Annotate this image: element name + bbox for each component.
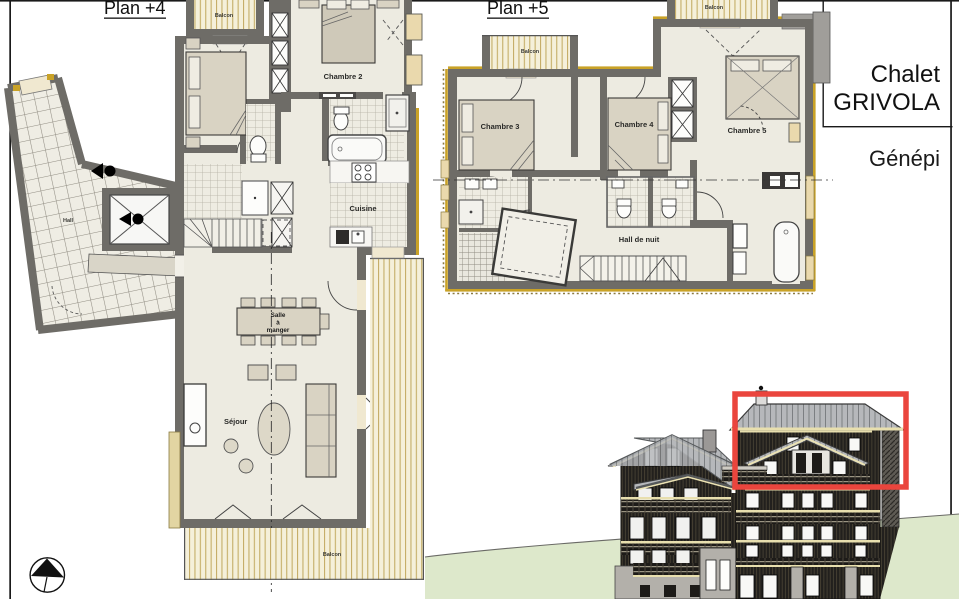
svg-text:Chambre 5: Chambre 5	[728, 126, 767, 135]
svg-text:Plan +4: Plan +4	[104, 0, 166, 18]
svg-text:Hall: Hall	[63, 218, 74, 224]
svg-text:Chambre 2: Chambre 2	[324, 72, 363, 81]
svg-text:Chambre 4: Chambre 4	[615, 120, 655, 129]
svg-text:Chambre 3: Chambre 3	[481, 122, 520, 131]
svg-text:Cuisine: Cuisine	[349, 204, 376, 213]
svg-text:GRIVOLA: GRIVOLA	[833, 89, 940, 116]
svg-text:Hall de nuit: Hall de nuit	[619, 235, 660, 244]
svg-text:Balcon: Balcon	[521, 49, 540, 55]
svg-text:Chalet: Chalet	[871, 61, 941, 88]
svg-text:Séjour: Séjour	[224, 417, 247, 426]
svg-text:Plan +5: Plan +5	[487, 0, 549, 18]
svg-text:Salle: Salle	[271, 312, 286, 319]
svg-text:Balcon: Balcon	[705, 5, 724, 11]
svg-text:à: à	[276, 320, 280, 327]
svg-text:Balcon: Balcon	[215, 13, 234, 19]
svg-text:manger: manger	[267, 327, 290, 334]
svg-text:Génépi: Génépi	[869, 146, 940, 171]
svg-text:Balcon: Balcon	[323, 552, 342, 558]
